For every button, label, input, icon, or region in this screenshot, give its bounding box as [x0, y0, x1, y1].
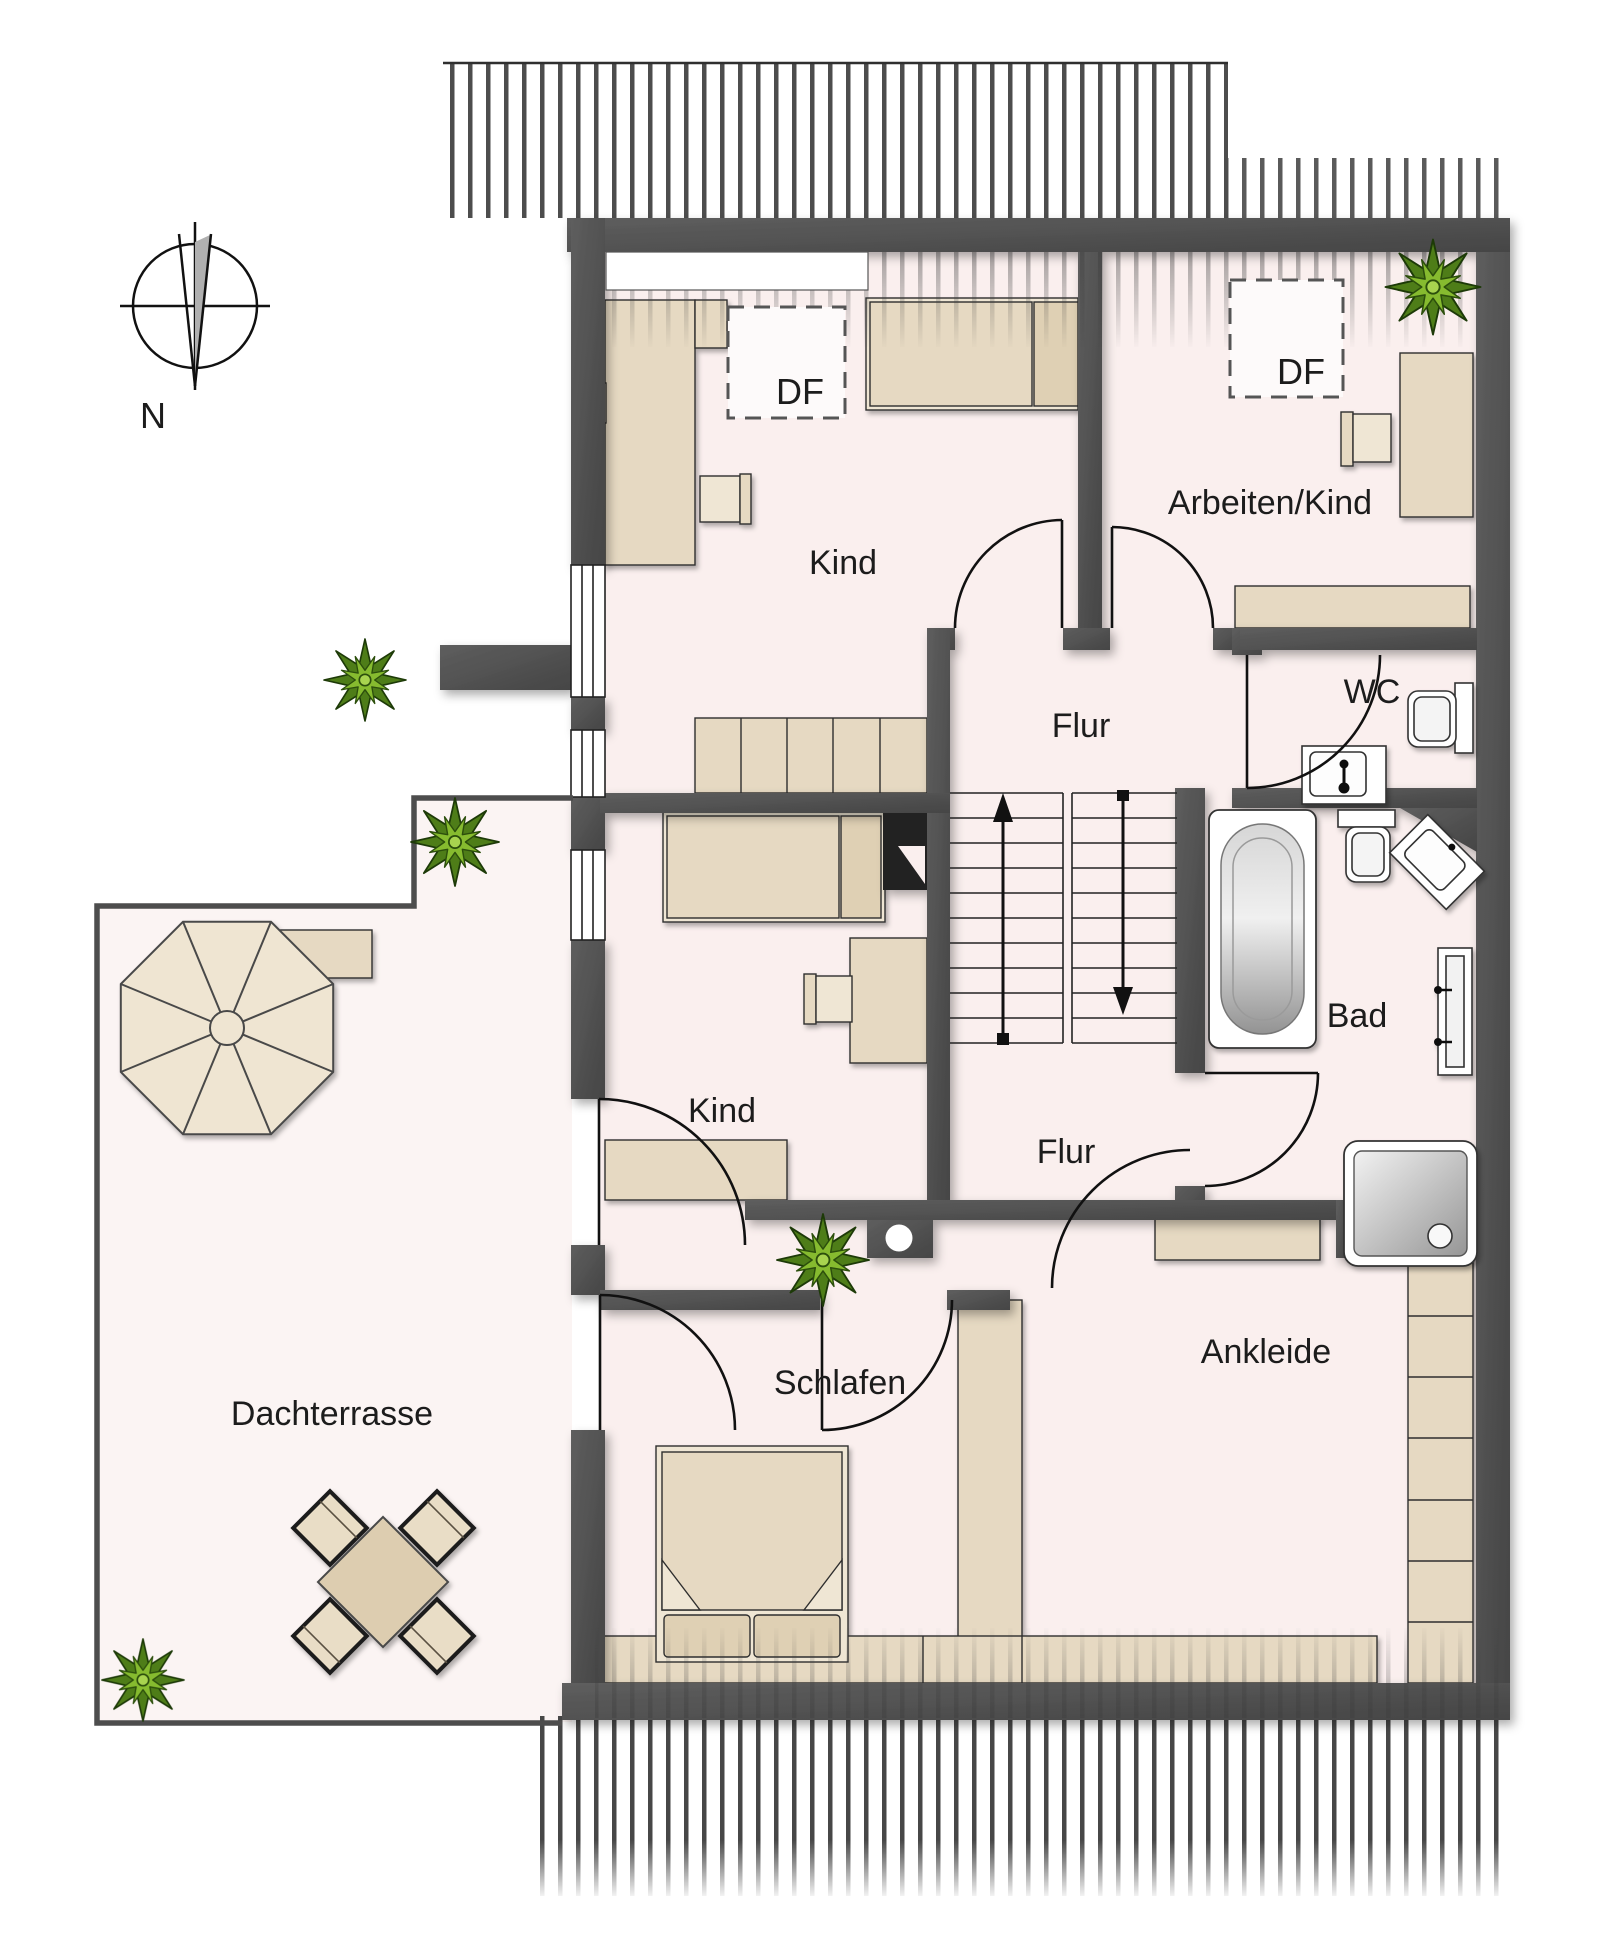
- room-label-flur-upper: Flur: [1052, 707, 1111, 745]
- bed-single: [663, 812, 885, 922]
- compass-rose-icon: [120, 222, 270, 390]
- terrace-privacy-wall: [440, 645, 573, 690]
- room-label-dachterrasse: Dachterrasse: [231, 1395, 433, 1433]
- sideboard: [605, 1140, 787, 1200]
- room-label-arbeiten-kind: Arbeiten/Kind: [1168, 484, 1372, 522]
- window: [571, 565, 605, 697]
- wall-pier: [1063, 628, 1110, 650]
- desk-chair: [804, 974, 852, 1024]
- floorplan-drawing: Kind Arbeiten/Kind Flur WC Bad Kind Flur…: [0, 0, 1600, 1942]
- bathtub: [1209, 810, 1316, 1048]
- parasol-octagon: [121, 922, 333, 1134]
- towel-radiator: [1434, 948, 1472, 1075]
- wall-exterior-left: [571, 1245, 605, 1295]
- tall-wardrobe: [958, 1300, 1022, 1638]
- room-label-schlafen: Schlafen: [774, 1364, 906, 1402]
- wall-stub: [947, 1290, 1010, 1310]
- window: [571, 730, 605, 797]
- desk-chair: [700, 474, 751, 524]
- roof-overhang-hatch-bottom: [540, 1716, 1510, 1896]
- wall-exterior-left: [571, 218, 605, 565]
- shower: [1344, 1141, 1477, 1266]
- desk: [850, 938, 927, 1063]
- wall-stair-bad: [1175, 788, 1205, 1073]
- floorplan-page: Kind Arbeiten/Kind Flur WC Bad Kind Flur…: [0, 0, 1600, 1942]
- toilet: [1338, 810, 1395, 882]
- wall-arbeiten-south: [1240, 628, 1477, 650]
- plant-icon: [102, 1639, 184, 1721]
- plant-icon: [1386, 240, 1481, 335]
- sideboard: [1235, 586, 1470, 628]
- toilet: [1408, 683, 1473, 753]
- room-label-flur-lower: Flur: [1037, 1133, 1096, 1171]
- washbasin: [1302, 746, 1386, 804]
- plant-icon: [777, 1214, 869, 1306]
- roof-shade-bottom: [595, 1628, 1508, 1718]
- desk: [1400, 353, 1473, 517]
- compass-north-label: N: [140, 395, 166, 436]
- roof-overhang-hatch-top: [443, 62, 1508, 218]
- plant-icon: [411, 798, 499, 886]
- room-label-bad: Bad: [1327, 997, 1388, 1035]
- roof-window-label: DF: [1277, 351, 1325, 392]
- wall-exterior-left: [571, 697, 605, 730]
- terrace-table-set: [293, 1491, 474, 1673]
- wardrobe-column: [1408, 1255, 1473, 1683]
- wall-kind-flur: [927, 628, 950, 1202]
- room-label-ankleide: Ankleide: [1201, 1333, 1331, 1371]
- wall-exterior-left: [571, 940, 605, 1099]
- sideboard: [1155, 1217, 1320, 1260]
- roof-window-label: DF: [776, 371, 824, 412]
- windows: [571, 565, 605, 940]
- wall-niche: [883, 813, 927, 890]
- desk-chair: [1341, 412, 1391, 466]
- wall-exterior-top: [567, 218, 1510, 252]
- wall-corridor-north: [745, 1200, 1350, 1220]
- knee-wall-strip: [606, 252, 868, 290]
- room-label-kind-middle: Kind: [688, 1092, 756, 1130]
- wall-exterior-right: [1476, 252, 1510, 1720]
- room-label-wc: WC: [1344, 673, 1401, 711]
- wall-chimney: [867, 1220, 933, 1258]
- plant-icon: [324, 639, 406, 721]
- wardrobe-row: [695, 718, 927, 793]
- wall-kind-kind: [600, 793, 950, 813]
- wall-exterior-left: [571, 797, 605, 850]
- window: [571, 850, 605, 940]
- chimney-circle: [886, 1225, 913, 1252]
- room-label-kind-top: Kind: [809, 544, 877, 582]
